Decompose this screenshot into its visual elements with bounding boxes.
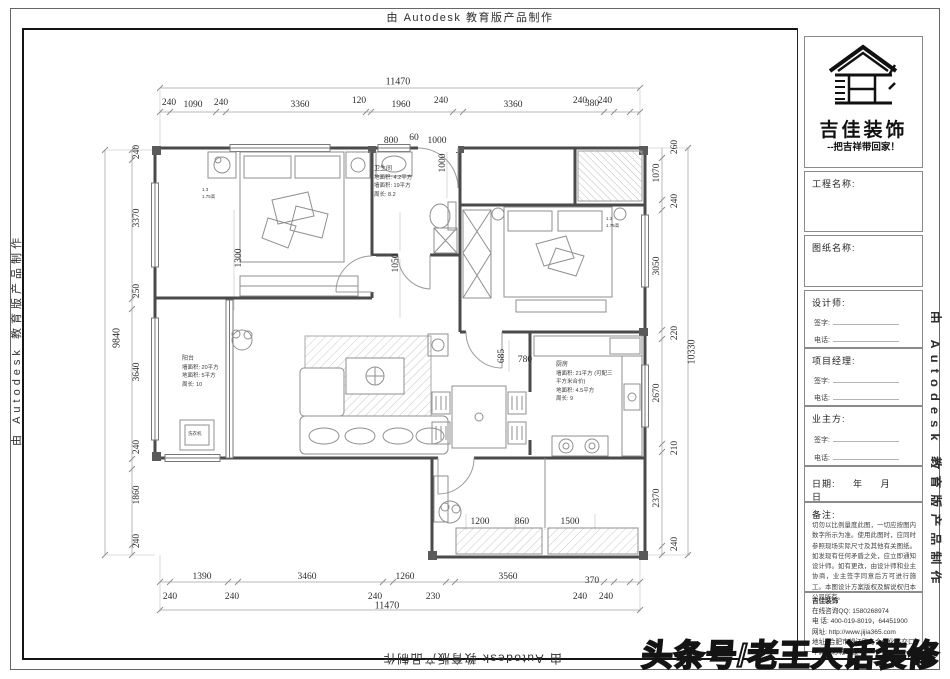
dim-top: 240 [598,96,612,106]
dim-bottom: 3560 [499,572,518,582]
designer-box: 设计师: 签字: 电话: [804,290,923,348]
dim-top: 1960 [392,100,411,110]
designer-sign-row: 签字: [814,317,899,328]
dim-right: 2370 [652,489,662,508]
company-brand: 吉佳装饰 [805,115,922,142]
dim-top: 120 [352,96,366,106]
dim-left-total: 9840 [112,328,123,348]
dim-top-total: 11470 [386,77,411,88]
dim-top-sub: 1000 [428,136,447,146]
bedroom3-furniture [434,458,638,554]
owner-phone-row: 电话: [814,452,899,463]
dim-top-sub: 60 [409,133,419,143]
dim-inner-1500: 1500 [561,517,580,527]
dim-right: 220 [670,326,680,340]
pm-phone-row: 电话: [814,392,899,403]
dim-right: 240 [670,194,680,208]
kitchen-label: 厨房 墙面积: 21平方 (可配三 平方米合价) 地面积: 4.5平方 周长: … [556,361,613,403]
dim-top: 3360 [291,100,310,110]
remarks-text: 切勿以比例量度此图，一切应按图内数字所示为准。使用此图时，应同时参照现场实际尺寸… [812,521,916,603]
bathroom-name: 卫生间 [374,165,412,174]
owner-sign-row: 签字: [814,434,899,445]
dim-top: 240 [214,98,228,108]
dim-left: 240 [132,145,142,159]
autodesk-watermark-top: 由 Autodesk 教育版产品制作 [387,9,554,25]
dim-top: 240 [434,96,448,106]
master-bedroom-furniture [208,152,370,296]
living-room-furniture [232,330,448,454]
project-name-label: 工程名称: [812,177,856,190]
dim-top: 1090 [184,100,203,110]
signature-line [833,317,899,325]
autodesk-watermark-left: 由 Autodesk 教育版产品制作 [8,234,24,446]
kitchen-name: 厨房 [556,361,613,370]
project-name-box: 工程名称: [804,171,923,232]
signature-line [833,375,899,383]
dim-bottom: 1390 [193,572,212,582]
headline-watermark: 头条号/老王大话装修 [640,630,941,675]
dim-inner-685: 685 [497,349,507,363]
owner-box: 业主方: 签字: 电话: [804,406,923,466]
dim-bottom2: 240 [163,592,177,602]
pm-sign-row: 签字: [814,375,899,386]
date-box: 日期: 年 月 日 [804,466,923,502]
phone-line [833,452,899,460]
dim-right: 240 [670,537,680,551]
window-note-master: 1.3 1.75高 [202,187,215,201]
balcony-name: 阳台 [182,355,219,364]
designer-label: 设计师: [812,296,846,309]
dim-bottom2: 240 [573,592,587,602]
bathroom-label: 卫生间 地面积: 4.2平方 墙面积: 19平方 周长: 8.2 [374,165,412,199]
drawing-name-box: 图纸名称: [804,235,923,287]
pm-box: 项目经理: 签字: 电话: [804,348,923,406]
company-slogan: --把吉祥带回家！ [805,139,922,153]
remarks-label: 备注: [812,508,836,521]
phone-line [833,334,899,342]
owner-label: 业主方: [812,412,846,425]
dim-left: 3370 [132,209,142,228]
dim-right-total: 10330 [687,340,698,365]
dim-left: 1860 [132,486,142,505]
dim-right: 3050 [652,257,662,276]
date-row: 日期: 年 月 日 [812,477,922,503]
dim-bottom: 370 [585,576,599,586]
bedroom2-furniture [463,207,626,312]
dim-bottom2: 230 [426,592,440,602]
phone-line [833,392,899,400]
dim-bottom: 1260 [396,572,415,582]
dim-bottom2: 240 [225,592,239,602]
dim-left: 3640 [132,363,142,382]
company-logo-icon [805,39,922,113]
dim-bottom2: 240 [599,592,613,602]
dim-right: 260 [670,140,680,154]
dim-inner-1300: 1300 [234,249,244,268]
balcony-label: 阳台 墙面积: 20平方 地面积: 5平方 周长: 10 [182,355,219,389]
window-note-bedroom2: 1.3 1.75高 [606,216,619,230]
dim-left: 240 [132,440,142,454]
designer-phone-row: 电话: [814,334,899,345]
shaft-hatch [578,151,642,201]
dim-top: 240 [162,98,176,108]
dim-bottom: 3460 [298,572,317,582]
signature-line [833,434,899,442]
dim-right: 210 [670,441,680,455]
dim-left: 250 [132,284,142,298]
remarks-box: 备注: 切勿以比例量度此图，一切应按图内数字所示为准。使用此图时，应同时参照现场… [804,502,923,592]
title-block: 吉佳装饰 --把吉祥带回家！ 工程名称: 图纸名称: 设计师: 签字: 电话: … [797,28,931,658]
dim-top-sub: 800 [384,136,398,146]
dim-bottom-total: 11470 [375,601,400,612]
dim-inner-1000: 1000 [438,154,448,173]
logo-box: 吉佳装饰 --把吉祥带回家！ [804,36,923,168]
dim-right: 2670 [652,384,662,403]
drawing-sheet: 11470 240 1090 240 3360 120 1960 240 336… [0,0,950,679]
drawing-name-label: 图纸名称: [812,241,856,254]
dim-right: 1070 [652,164,662,183]
dim-inner-1200: 1200 [471,517,490,527]
dim-inner-780: 780 [518,355,532,365]
dim-inner-860: 860 [515,517,529,527]
autodesk-watermark-bottom: 由 Autodesk 教育版产品制作 [382,651,562,668]
dim-top: 3360 [504,100,523,110]
dim-inner-1050: 1050 [391,254,401,273]
washer-label: 洗衣机 [188,431,202,438]
pm-label: 项目经理: [812,354,856,367]
dim-left: 240 [132,534,142,548]
